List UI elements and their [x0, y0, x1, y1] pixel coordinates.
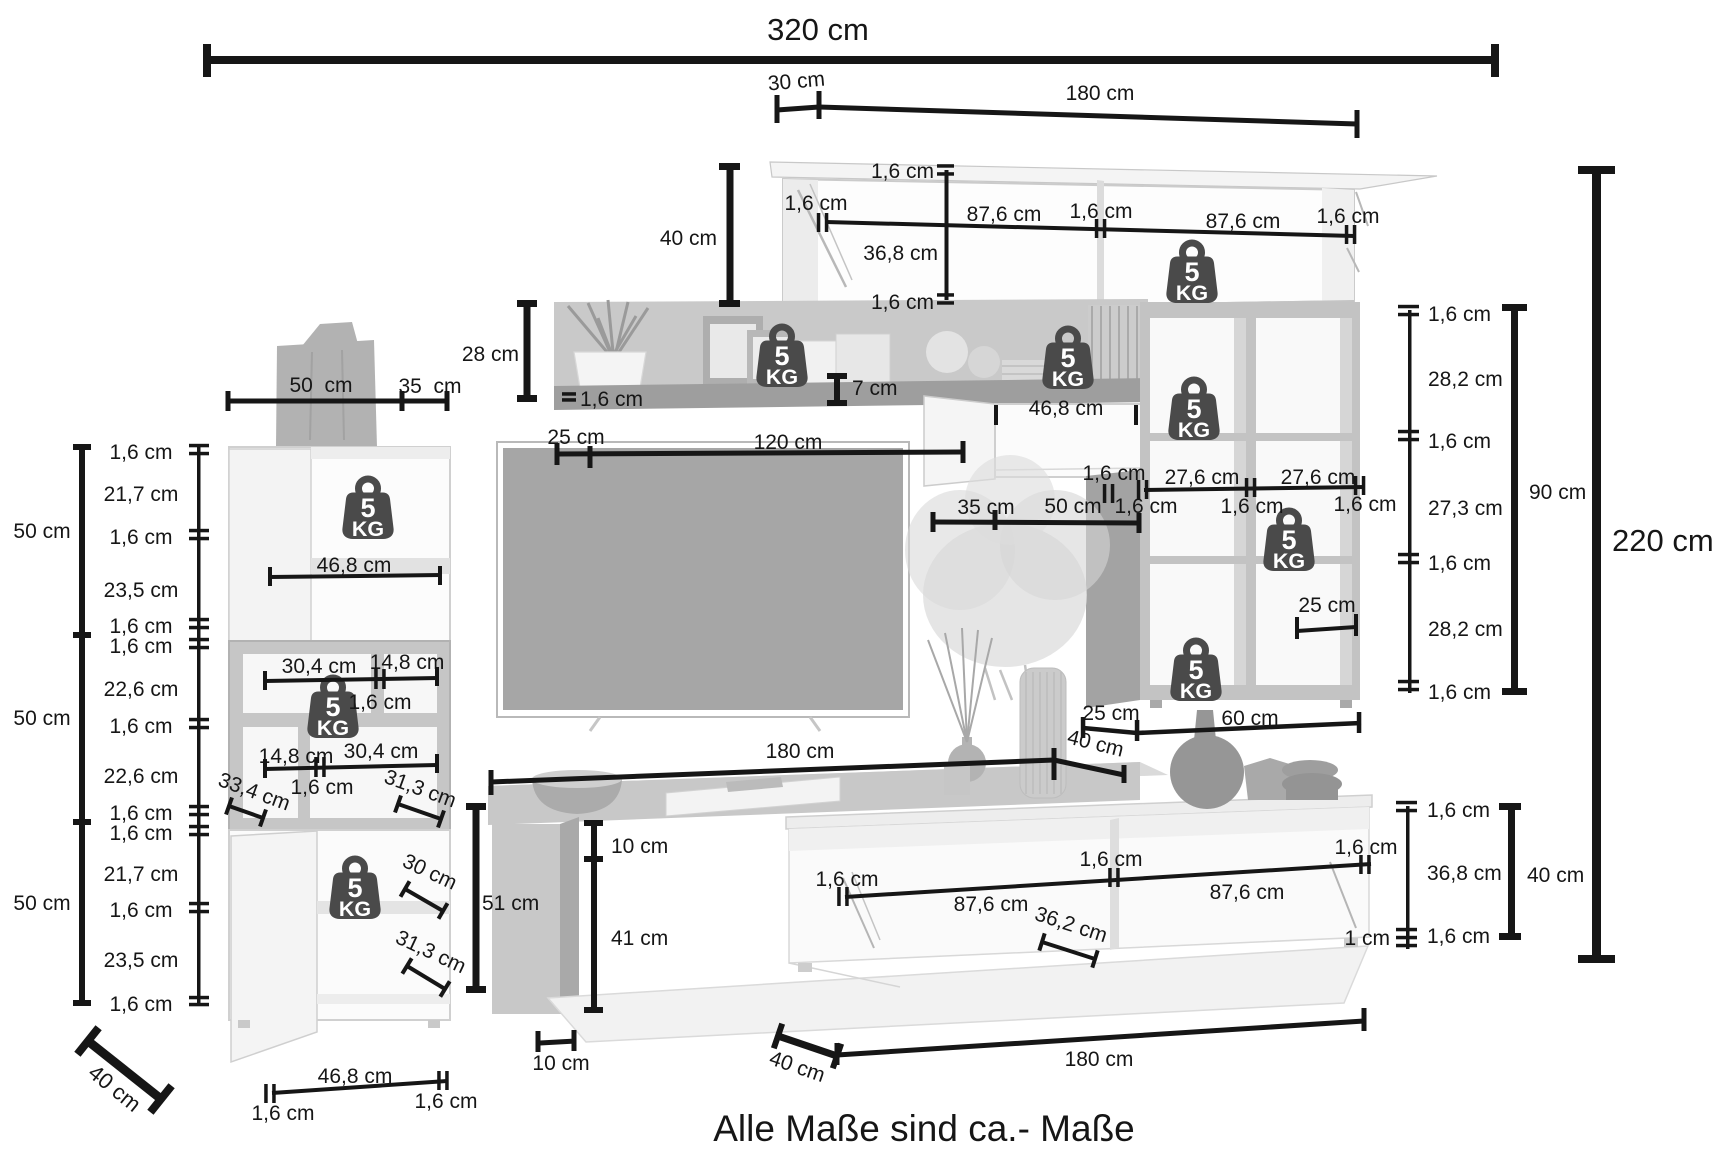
svg-text:1,6 cm: 1,6 cm [109, 715, 172, 738]
svg-text:10 cm: 10 cm [532, 1052, 589, 1075]
svg-text:21,7 cm: 21,7 cm [104, 863, 179, 886]
svg-text:7 cm: 7 cm [852, 377, 898, 400]
svg-text:41 cm: 41 cm [611, 927, 668, 950]
svg-text:1,6 cm: 1,6 cm [1428, 430, 1491, 453]
svg-text:22,6 cm: 22,6 cm [104, 765, 179, 788]
svg-text:87,6 cm: 87,6 cm [954, 893, 1029, 916]
svg-text:50 cm: 50 cm [13, 707, 70, 730]
svg-text:1 cm: 1 cm [1344, 927, 1390, 950]
svg-text:50 cm: 50 cm [13, 520, 70, 543]
svg-text:10 cm: 10 cm [611, 835, 668, 858]
svg-text:23,5 cm: 23,5 cm [104, 949, 179, 972]
svg-text:23,5 cm: 23,5 cm [104, 579, 179, 602]
svg-text:25 cm: 25 cm [1082, 702, 1139, 725]
svg-text:1,6 cm: 1,6 cm [1428, 303, 1491, 326]
svg-text:1,6 cm: 1,6 cm [1427, 925, 1490, 948]
svg-text:22,6 cm: 22,6 cm [104, 678, 179, 701]
svg-text:1,6 cm: 1,6 cm [251, 1102, 314, 1125]
svg-text:50 cm: 50 cm [1044, 495, 1101, 518]
svg-text:27,6 cm: 27,6 cm [1165, 466, 1240, 489]
svg-text:1,6 cm: 1,6 cm [1334, 836, 1397, 859]
svg-text:1,6 cm: 1,6 cm [871, 160, 934, 183]
svg-text:1,6 cm: 1,6 cm [1220, 495, 1283, 518]
svg-text:Alle Maße sind ca.- Maße: Alle Maße sind ca.- Maße [713, 1108, 1135, 1149]
svg-text:25 cm: 25 cm [1298, 594, 1355, 617]
svg-text:14,8 cm: 14,8 cm [259, 745, 334, 768]
svg-text:1,6 cm: 1,6 cm [1428, 681, 1491, 704]
svg-text:30,4 cm: 30,4 cm [344, 740, 419, 763]
svg-text:60 cm: 60 cm [1221, 707, 1278, 730]
svg-text:50 cm: 50 cm [13, 892, 70, 915]
svg-text:46,8 cm: 46,8 cm [318, 1065, 393, 1088]
svg-text:28,2 cm: 28,2 cm [1428, 618, 1503, 641]
svg-text:220 cm: 220 cm [1612, 523, 1714, 558]
svg-text:1,6 cm: 1,6 cm [784, 192, 847, 215]
svg-text:1,6 cm: 1,6 cm [1079, 848, 1142, 871]
svg-text:1,6 cm: 1,6 cm [580, 388, 643, 411]
svg-text:35 cm: 35 cm [398, 375, 461, 398]
svg-text:87,6 cm: 87,6 cm [967, 203, 1042, 226]
svg-text:1,6 cm: 1,6 cm [1428, 552, 1491, 575]
svg-text:30,4 cm: 30,4 cm [282, 655, 357, 678]
svg-text:180 cm: 180 cm [1066, 82, 1135, 105]
svg-text:50 cm: 50 cm [289, 374, 352, 397]
svg-text:1,6 cm: 1,6 cm [1427, 799, 1490, 822]
svg-text:40 cm: 40 cm [1527, 864, 1584, 887]
svg-text:46,8 cm: 46,8 cm [317, 554, 392, 577]
svg-text:14,8 cm: 14,8 cm [370, 651, 445, 674]
svg-text:1,6 cm: 1,6 cm [109, 993, 172, 1016]
svg-text:1,6 cm: 1,6 cm [1069, 200, 1132, 223]
svg-text:21,7 cm: 21,7 cm [104, 483, 179, 506]
svg-text:46,8 cm: 46,8 cm [1029, 397, 1104, 420]
svg-text:87,6 cm: 87,6 cm [1210, 881, 1285, 904]
svg-text:1,6 cm: 1,6 cm [109, 635, 172, 658]
svg-text:1,6 cm: 1,6 cm [109, 441, 172, 464]
svg-text:87,6 cm: 87,6 cm [1206, 210, 1281, 233]
svg-text:27,3 cm: 27,3 cm [1428, 497, 1503, 520]
svg-text:51 cm: 51 cm [482, 892, 539, 915]
svg-text:180 cm: 180 cm [1065, 1048, 1134, 1071]
svg-text:1,6 cm: 1,6 cm [109, 899, 172, 922]
svg-text:180 cm: 180 cm [766, 740, 835, 763]
svg-text:35 cm: 35 cm [957, 496, 1014, 519]
svg-text:320 cm: 320 cm [767, 12, 869, 47]
svg-text:1,6 cm: 1,6 cm [1316, 205, 1379, 228]
svg-text:1,6 cm: 1,6 cm [1114, 495, 1177, 518]
svg-text:1,6 cm: 1,6 cm [109, 526, 172, 549]
svg-text:1,6 cm: 1,6 cm [290, 776, 353, 799]
svg-text:1,6 cm: 1,6 cm [414, 1090, 477, 1113]
svg-text:36,8 cm: 36,8 cm [863, 242, 938, 265]
svg-text:1,6 cm: 1,6 cm [348, 691, 411, 714]
svg-text:1,6 cm: 1,6 cm [815, 868, 878, 891]
svg-text:40 cm: 40 cm [660, 227, 717, 250]
svg-text:25 cm: 25 cm [547, 426, 604, 449]
svg-text:28,2 cm: 28,2 cm [1428, 368, 1503, 391]
svg-text:1,6 cm: 1,6 cm [109, 822, 172, 845]
svg-text:1,6 cm: 1,6 cm [1333, 493, 1396, 516]
svg-text:1,6 cm: 1,6 cm [1082, 462, 1145, 485]
svg-text:90 cm: 90 cm [1529, 481, 1586, 504]
svg-text:28 cm: 28 cm [462, 343, 519, 366]
svg-text:1,6 cm: 1,6 cm [871, 291, 934, 314]
svg-text:27,6 cm: 27,6 cm [1281, 466, 1356, 489]
svg-text:120 cm: 120 cm [754, 431, 823, 454]
svg-text:36,8 cm: 36,8 cm [1427, 862, 1502, 885]
